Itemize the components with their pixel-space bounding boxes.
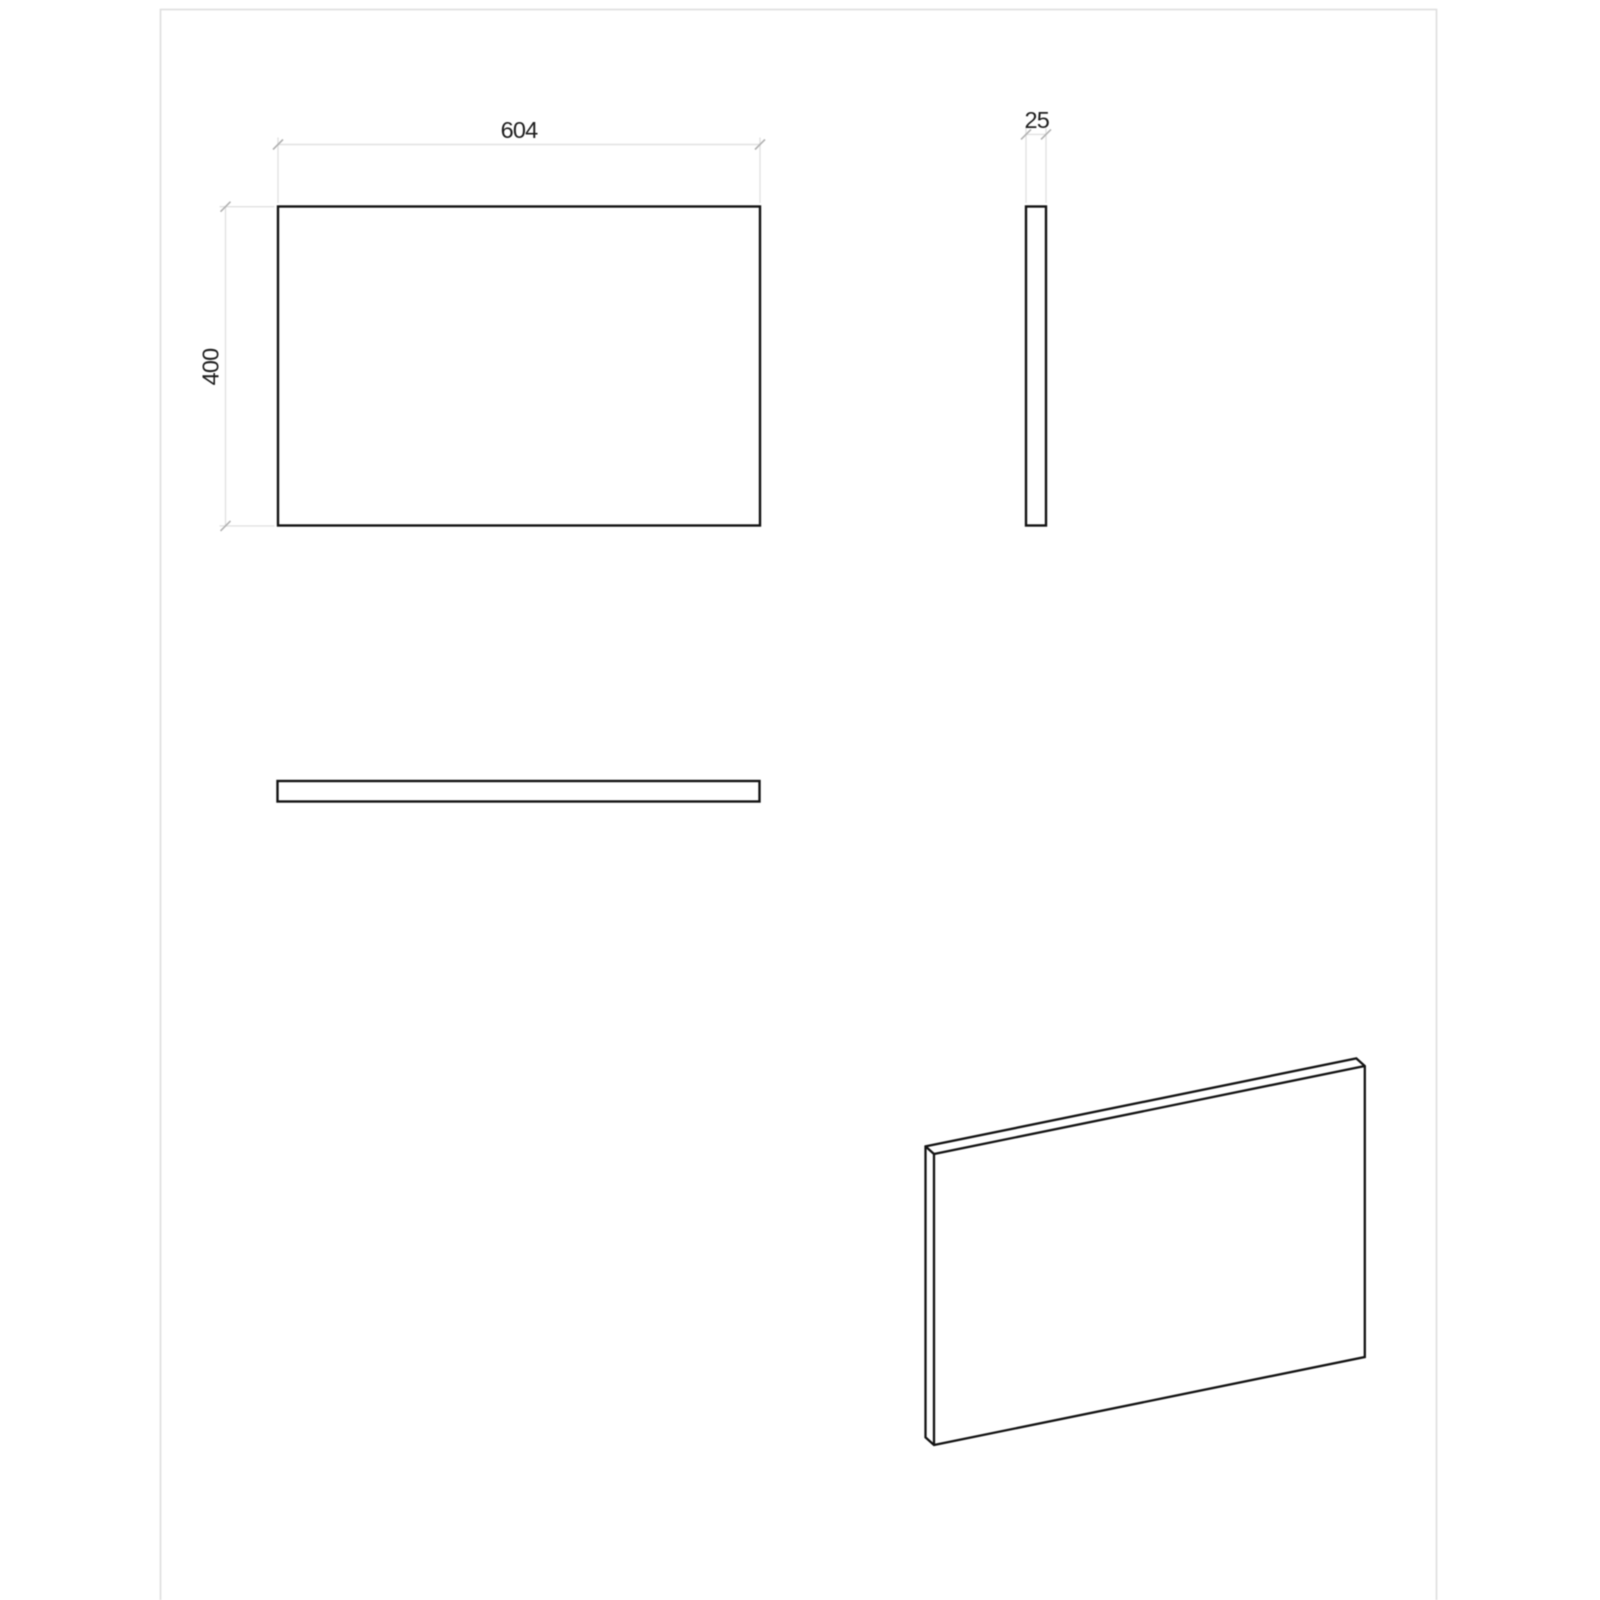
- svg-text:604: 604: [501, 117, 539, 143]
- svg-text:25: 25: [1025, 107, 1050, 133]
- svg-text:400: 400: [197, 348, 223, 386]
